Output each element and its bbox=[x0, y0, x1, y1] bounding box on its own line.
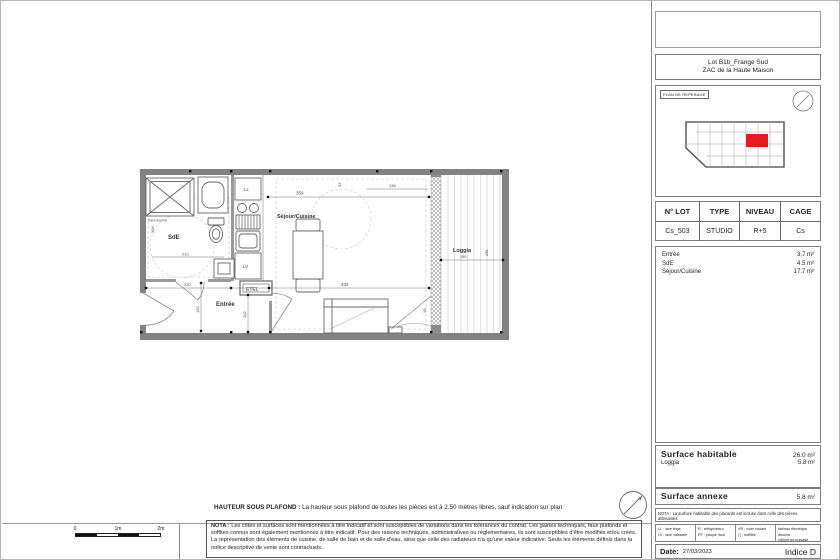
legend-col-shutters: VR : volet roulant [ ] : soffites bbox=[736, 525, 776, 541]
room-area: 3.7 m² bbox=[797, 251, 814, 260]
dim-sejour-top-right: 136 bbox=[389, 183, 396, 188]
surface-annexe-label: Surface annexe bbox=[661, 491, 728, 501]
lot-value-numlot: Cs_503 bbox=[656, 222, 700, 241]
lot-value-cage: Cs bbox=[781, 222, 820, 241]
dim-sde-width: 210 bbox=[182, 252, 189, 257]
date-row: Date: 27/03/2023 Indice D bbox=[655, 544, 821, 559]
lot-header-niveau: NIVEAU bbox=[740, 202, 781, 222]
dim-entree-left: 132 bbox=[195, 306, 200, 313]
label-volet-roulant: VR bbox=[423, 308, 427, 313]
floor-plan: SdE Entrée Séjour/Cuisine Loggia LL LV E… bbox=[136, 161, 521, 351]
surface-habitable-value: 26.0 m² bbox=[793, 452, 815, 459]
legend-item: [ ] : soffites bbox=[738, 533, 774, 539]
north-compass-icon bbox=[617, 489, 651, 523]
nota-box: NOTA : Les côtes et surfaces sont mentio… bbox=[206, 520, 642, 558]
key-plan-box: PLAN DE REPERAGE bbox=[655, 85, 821, 197]
annex-value: 5.8 m² bbox=[798, 460, 815, 466]
room-area: 17.7 m² bbox=[794, 268, 814, 277]
unit-highlight bbox=[746, 134, 768, 147]
room-label-entree: Entrée bbox=[216, 302, 235, 308]
sde-cabinet bbox=[214, 259, 234, 278]
scale-label-2m: 2m bbox=[158, 526, 165, 532]
project-line2: ZAC de la Haute Maison bbox=[703, 67, 774, 75]
nota-text: Les côtes et surfaces sont mentionnées à… bbox=[211, 523, 636, 551]
glazed-facade bbox=[431, 175, 441, 333]
label-pare-douche: Pare-douche bbox=[148, 219, 168, 223]
label-lave-vaisselle: LV bbox=[243, 264, 248, 269]
dim-loggia-width: 150 bbox=[460, 255, 466, 259]
dining-table bbox=[293, 219, 323, 292]
scale-bar-segments bbox=[75, 533, 161, 537]
dim-entree-width: 230 bbox=[184, 282, 191, 287]
surface-annexe-box: Surface annexe 5.8 m² bbox=[655, 488, 821, 505]
nota-label: NOTA : bbox=[211, 523, 230, 529]
legend-box: LL : lave linge LV : lave vaisselle R : … bbox=[655, 524, 821, 542]
toilet bbox=[208, 218, 224, 243]
room-area: 4.5 m² bbox=[797, 260, 814, 269]
lot-header-numlot: N° LOT bbox=[656, 202, 700, 222]
room-label-loggia: Loggia bbox=[453, 248, 472, 254]
lot-table: N° LOT TYPE NIVEAU CAGE Cs_503 STUDIO R+… bbox=[655, 201, 821, 241]
plan-sheet: SdE Entrée Séjour/Cuisine Loggia LL LV E… bbox=[0, 0, 840, 560]
key-plan-compass-icon bbox=[791, 89, 815, 113]
lot-value-niveau: R+5 bbox=[740, 222, 781, 241]
date-value: 27/03/2023 bbox=[683, 549, 785, 555]
key-plan bbox=[680, 112, 796, 188]
surface-habitable-label: Surface habitable bbox=[661, 449, 737, 459]
surface-habitable-row-loggia: Loggia 5.8 m² bbox=[661, 460, 815, 466]
lot-header-type: TYPE bbox=[700, 202, 740, 222]
legend-item: LV : lave vaisselle bbox=[658, 533, 694, 539]
legend-item: tableau électrique abonné bbox=[778, 527, 819, 538]
legend-col-appliances: R : réfrigérateur PF : plaque /four bbox=[696, 525, 736, 541]
project-title-box: Lot B1b_Frange Sud ZAC de la Haute Maiso… bbox=[655, 54, 821, 80]
legend-item: robinet de puisage bbox=[778, 538, 819, 541]
surface-annexe-value: 5.8 m² bbox=[797, 494, 815, 501]
placards-nota: NOTA : La surface habitable des placards… bbox=[655, 508, 821, 522]
reperage-label: PLAN DE REPERAGE bbox=[660, 90, 709, 99]
shower-tray bbox=[146, 178, 194, 216]
title-block-divider bbox=[651, 1, 652, 560]
label-lave-linge: LL bbox=[244, 187, 250, 192]
legend-col-electrical: tableau électrique abonné robinet de pui… bbox=[776, 525, 820, 541]
room-name: Séjour/Cuisine bbox=[662, 268, 701, 277]
room-areas-box: Entrée 3.7 m² SdE 4.5 m² Séjour/Cuisine … bbox=[655, 246, 821, 443]
room-label-sejour: Séjour/Cuisine bbox=[277, 214, 316, 220]
scale-bar: 0 1m 2m bbox=[75, 526, 161, 537]
legend-col-laundry: LL : lave linge LV : lave vaisselle bbox=[656, 525, 696, 541]
room-name: SdE bbox=[662, 260, 673, 269]
dim-sejour-bottom: 402 bbox=[341, 282, 349, 287]
room-row-sde: SdE 4.5 m² bbox=[661, 260, 815, 269]
dim-entree-right: 102 bbox=[242, 311, 247, 318]
room-name: Entrée bbox=[662, 251, 680, 260]
logo-box bbox=[655, 11, 821, 48]
washbasin bbox=[198, 177, 228, 213]
dim-facade-top: 52 bbox=[337, 182, 342, 187]
label-etel: ETEL bbox=[246, 287, 259, 293]
dim-loggia-height: 298 bbox=[485, 250, 489, 256]
scale-label-0: 0 bbox=[74, 526, 77, 532]
ceiling-height-note: HAUTEUR SOUS PLAFOND : La hauteur sous p… bbox=[214, 504, 562, 511]
project-line1: Lot B1b_Frange Sud bbox=[708, 59, 768, 67]
placards-nota-text: NOTA : La surface habitable des placards… bbox=[658, 511, 797, 521]
scale-label-1m: 1m bbox=[115, 526, 122, 532]
room-row-sejour: Séjour/Cuisine 17.7 m² bbox=[661, 268, 815, 277]
ceiling-height-label: HAUTEUR SOUS PLAFOND : bbox=[214, 504, 300, 511]
date-label: Date: bbox=[660, 547, 679, 556]
ceiling-height-text: La hauteur sous plafond de toutes les pi… bbox=[302, 504, 562, 511]
footer-cell-divider bbox=[179, 523, 180, 560]
room-row-entree: Entrée 3.7 m² bbox=[661, 251, 815, 260]
surface-habitable-box: Surface habitable 26.0 m² Loggia 5.8 m² bbox=[655, 445, 821, 488]
revision-index: Indice D bbox=[785, 547, 816, 557]
loggia-decking bbox=[448, 175, 500, 333]
annex-name: Loggia bbox=[661, 460, 679, 466]
lot-value-type: STUDIO bbox=[700, 222, 740, 241]
dim-sde-height: 206 bbox=[150, 226, 155, 233]
lot-header-cage: CAGE bbox=[781, 202, 820, 222]
room-label-sde: SdE bbox=[168, 235, 180, 241]
legend-item: PF : plaque /four bbox=[698, 533, 734, 539]
dim-sejour-top: 359 bbox=[296, 191, 304, 196]
sofa bbox=[324, 299, 402, 333]
